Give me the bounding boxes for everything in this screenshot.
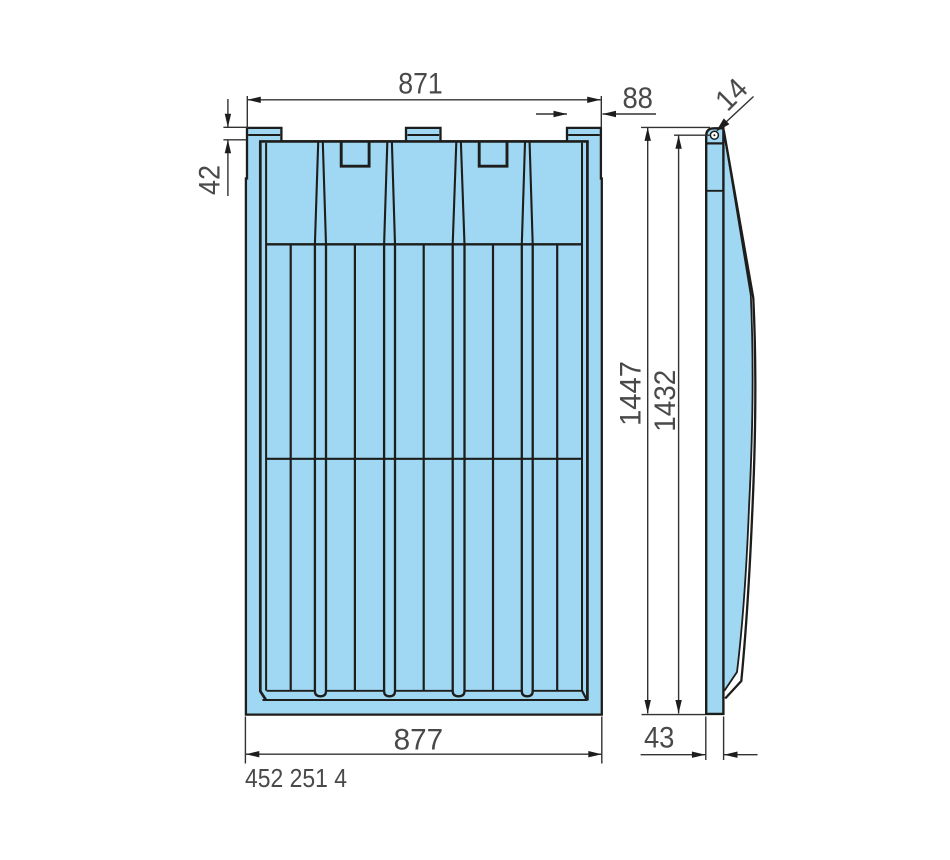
svg-text:452 251 4: 452 251 4 bbox=[245, 763, 347, 793]
svg-text:42: 42 bbox=[194, 165, 227, 195]
svg-text:871: 871 bbox=[398, 67, 443, 100]
svg-text:877: 877 bbox=[394, 724, 444, 757]
svg-text:43: 43 bbox=[644, 722, 675, 755]
svg-text:1447: 1447 bbox=[615, 361, 648, 426]
svg-text:1432: 1432 bbox=[649, 370, 682, 432]
svg-text:88: 88 bbox=[622, 82, 653, 115]
